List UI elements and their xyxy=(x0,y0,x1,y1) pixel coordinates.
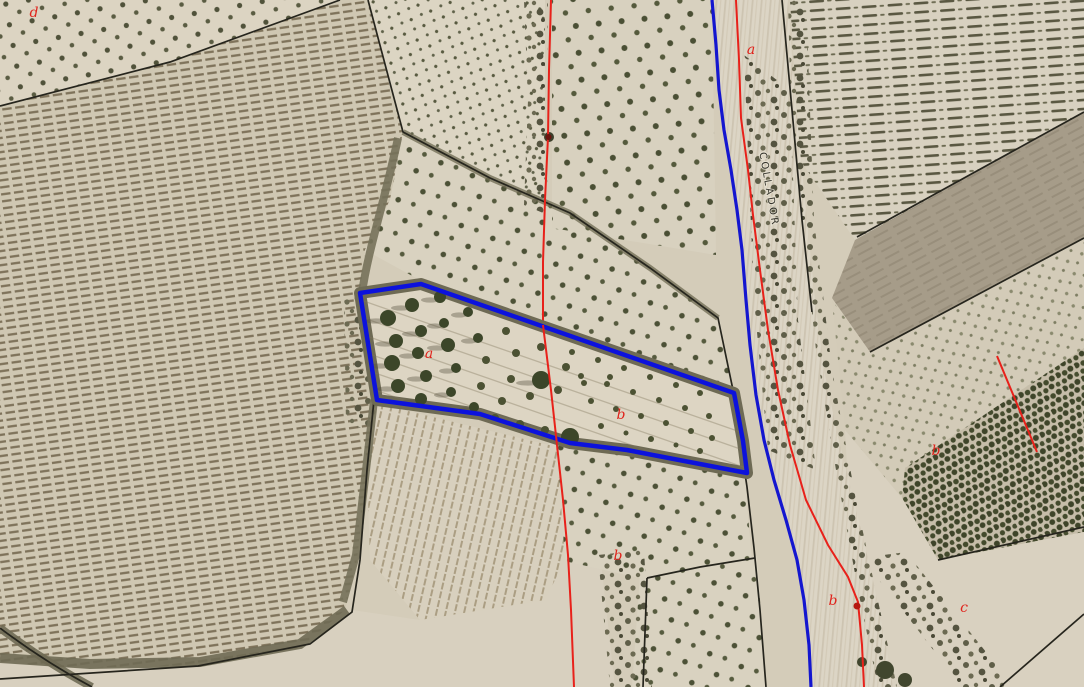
tree-road-corner-2 xyxy=(898,673,912,687)
olive-tree xyxy=(512,349,520,357)
olive-tree xyxy=(562,363,570,371)
olive-tree xyxy=(709,435,715,441)
olive-tree xyxy=(674,443,679,448)
olive-tree xyxy=(673,382,679,388)
olive-tree xyxy=(526,392,534,400)
olive-tree xyxy=(598,423,604,429)
olive-tree xyxy=(638,413,644,419)
olive-tree xyxy=(507,375,515,383)
olive-tree xyxy=(697,448,703,454)
field-vineyard-large xyxy=(0,0,403,668)
olive-tree xyxy=(415,325,427,337)
olive-tree xyxy=(595,357,601,363)
olive-tree xyxy=(389,334,403,348)
olive-tree xyxy=(706,413,712,419)
map-letter-label: a xyxy=(747,42,755,58)
olive-tree xyxy=(502,327,510,335)
olive-tree xyxy=(441,338,455,352)
olive-tree xyxy=(578,373,584,379)
olive-tree xyxy=(477,382,485,390)
field-orchard-bottom-center xyxy=(632,556,766,687)
red-vertex-marker-2 xyxy=(854,603,861,610)
olive-tree xyxy=(451,363,461,373)
olive-tree xyxy=(604,381,610,387)
map-letter-label: c xyxy=(960,600,968,616)
olive-tree xyxy=(446,387,456,397)
olive-tree xyxy=(624,431,629,436)
olive-tree xyxy=(656,397,662,403)
olive-tree xyxy=(688,428,694,434)
olive-tree xyxy=(380,310,396,326)
tree-road-corner-1 xyxy=(876,661,894,679)
olive-tree xyxy=(532,371,550,389)
map-viewport[interactable]: COLLADOR daabbbbc xyxy=(0,0,1084,687)
olive-tree xyxy=(569,349,575,355)
map-letter-label: b xyxy=(614,548,623,564)
map-letter-label: b xyxy=(932,443,941,459)
olive-tree xyxy=(412,347,424,359)
map-letter-label: d xyxy=(30,5,39,21)
olive-tree xyxy=(648,436,654,442)
olive-tree xyxy=(405,298,419,312)
olive-tree xyxy=(439,318,449,328)
olive-tree xyxy=(391,379,405,393)
olive-tree xyxy=(473,333,483,343)
olive-tree xyxy=(682,405,688,411)
olive-tree xyxy=(581,380,587,386)
olive-tree xyxy=(663,420,669,426)
olive-tree xyxy=(554,386,562,394)
olive-tree xyxy=(630,389,636,395)
olive-tree xyxy=(482,356,490,364)
red-vertex-marker-1 xyxy=(546,134,552,140)
olive-tree xyxy=(621,365,627,371)
olive-tree xyxy=(697,390,703,396)
olive-tree xyxy=(588,398,594,404)
map-letter-label: b xyxy=(617,407,626,423)
olive-tree xyxy=(647,374,653,380)
olive-tree xyxy=(463,307,473,317)
aerial-map-canvas[interactable]: COLLADOR daabbbbc xyxy=(0,0,1084,687)
olive-tree xyxy=(607,374,613,380)
map-letter-label: b xyxy=(829,593,838,609)
map-letter-label: a xyxy=(425,346,433,362)
olive-tree xyxy=(384,355,400,371)
olive-tree xyxy=(498,397,506,405)
olive-tree xyxy=(537,343,545,351)
olive-tree xyxy=(420,370,432,382)
